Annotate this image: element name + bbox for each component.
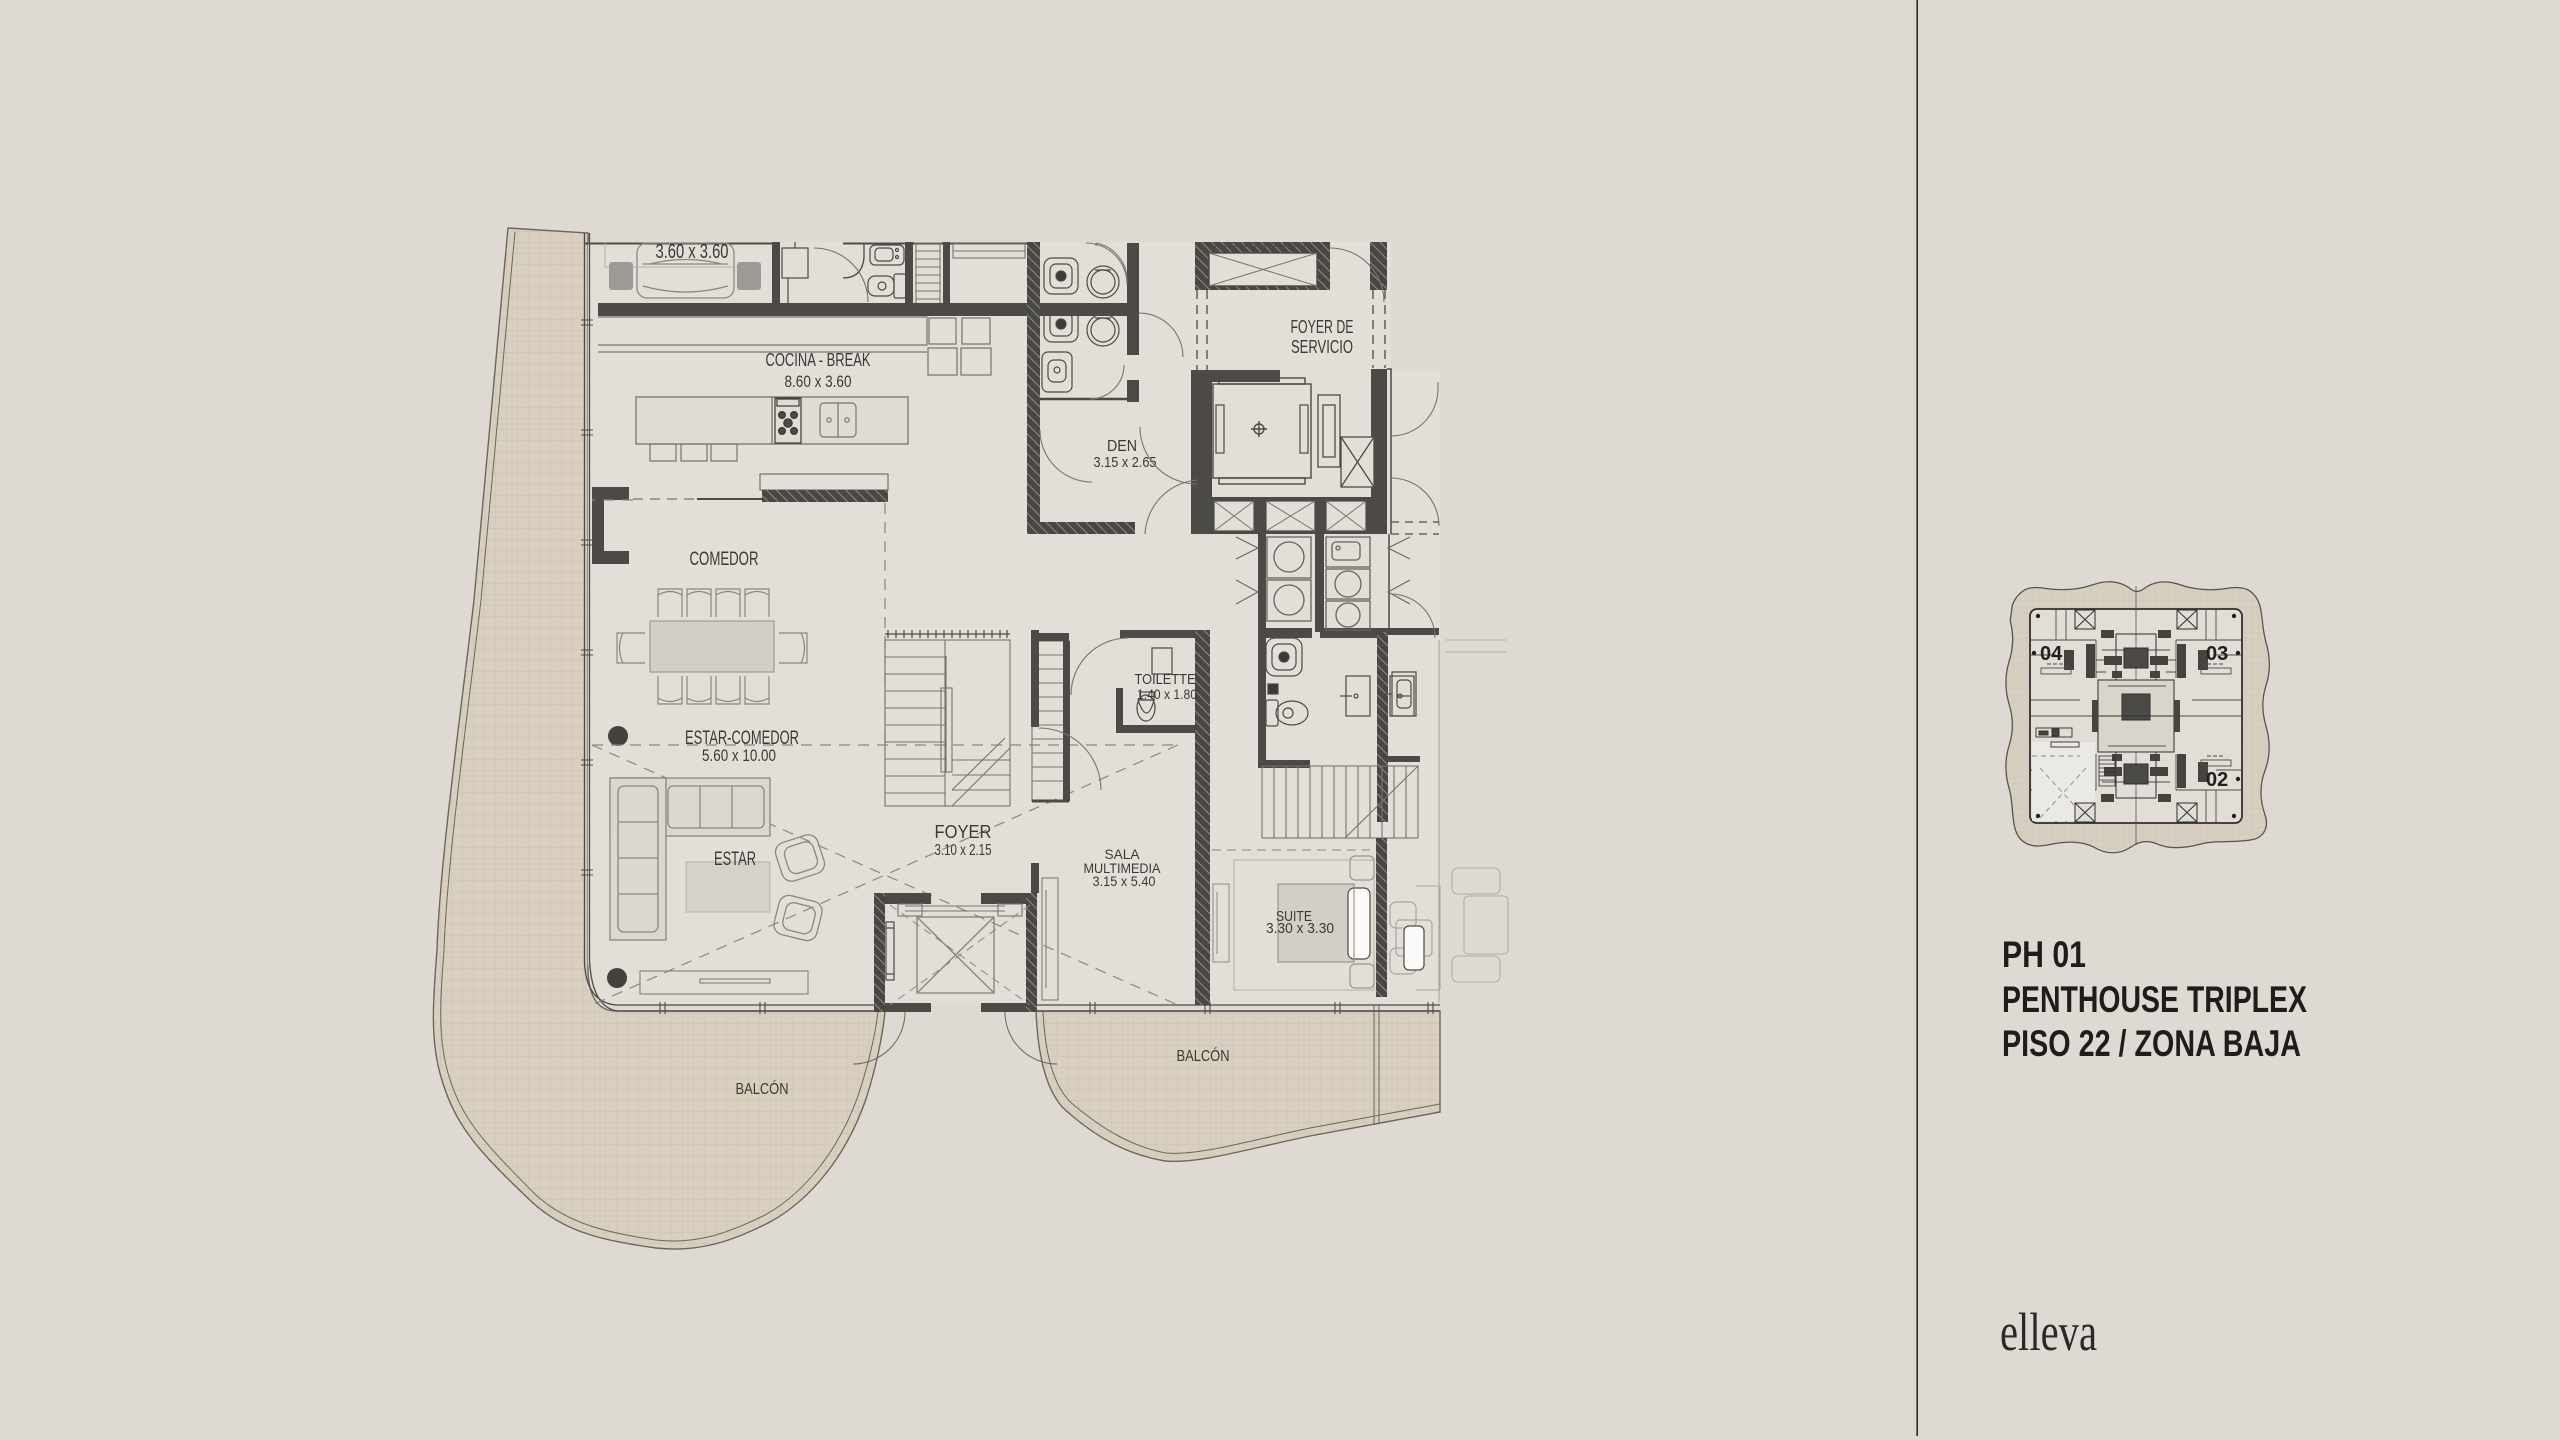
svg-text:COCINA - BREAK: COCINA - BREAK <box>766 350 871 370</box>
svg-text:FOYER DE: FOYER DE <box>1291 317 1354 337</box>
svg-text:3.60 x 3.60: 3.60 x 3.60 <box>656 241 729 263</box>
svg-text:BALCÓN: BALCÓN <box>1177 1046 1230 1065</box>
svg-text:3.10 x 2.15: 3.10 x 2.15 <box>935 842 992 859</box>
svg-text:03: 03 <box>2206 643 2228 665</box>
svg-text:DEN: DEN <box>1107 438 1137 455</box>
svg-text:SERVICIO: SERVICIO <box>1291 337 1353 357</box>
svg-text:PH 01: PH 01 <box>2002 934 2086 975</box>
svg-text:1.40 x 1.80: 1.40 x 1.80 <box>1137 686 1197 702</box>
svg-text:02: 02 <box>2206 769 2228 791</box>
svg-text:5.60 x 10.00: 5.60 x 10.00 <box>702 746 776 765</box>
svg-text:04: 04 <box>2040 643 2063 665</box>
svg-text:PENTHOUSE TRIPLEX: PENTHOUSE TRIPLEX <box>2002 979 2307 1020</box>
svg-text:FOYER: FOYER <box>935 822 992 842</box>
svg-text:8.60 x 3.60: 8.60 x 3.60 <box>785 372 852 391</box>
svg-text:3.30 x 3.30: 3.30 x 3.30 <box>1266 920 1334 937</box>
svg-text:3.15 x 5.40: 3.15 x 5.40 <box>1093 873 1156 889</box>
svg-text:BALCÓN: BALCÓN <box>736 1079 789 1098</box>
svg-text:elleva: elleva <box>2000 1302 2097 1362</box>
svg-text:COMEDOR: COMEDOR <box>690 549 759 570</box>
svg-text:ESTAR: ESTAR <box>714 849 756 870</box>
svg-text:PISO 22 / ZONA BAJA: PISO 22 / ZONA BAJA <box>2002 1023 2301 1064</box>
svg-text:3.15 x 2.65: 3.15 x 2.65 <box>1094 454 1157 471</box>
